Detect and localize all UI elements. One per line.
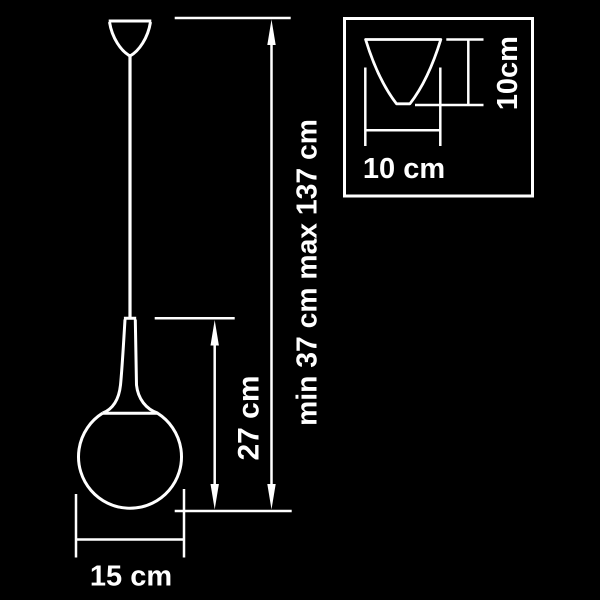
svg-text:15 cm: 15 cm (90, 561, 172, 593)
svg-text:10 cm: 10 cm (363, 153, 445, 185)
svg-text:27 cm: 27 cm (233, 375, 266, 460)
svg-text:10cm: 10cm (492, 36, 524, 110)
svg-text:min 37 cm max 137 cm: min 37 cm max 137 cm (291, 119, 323, 426)
